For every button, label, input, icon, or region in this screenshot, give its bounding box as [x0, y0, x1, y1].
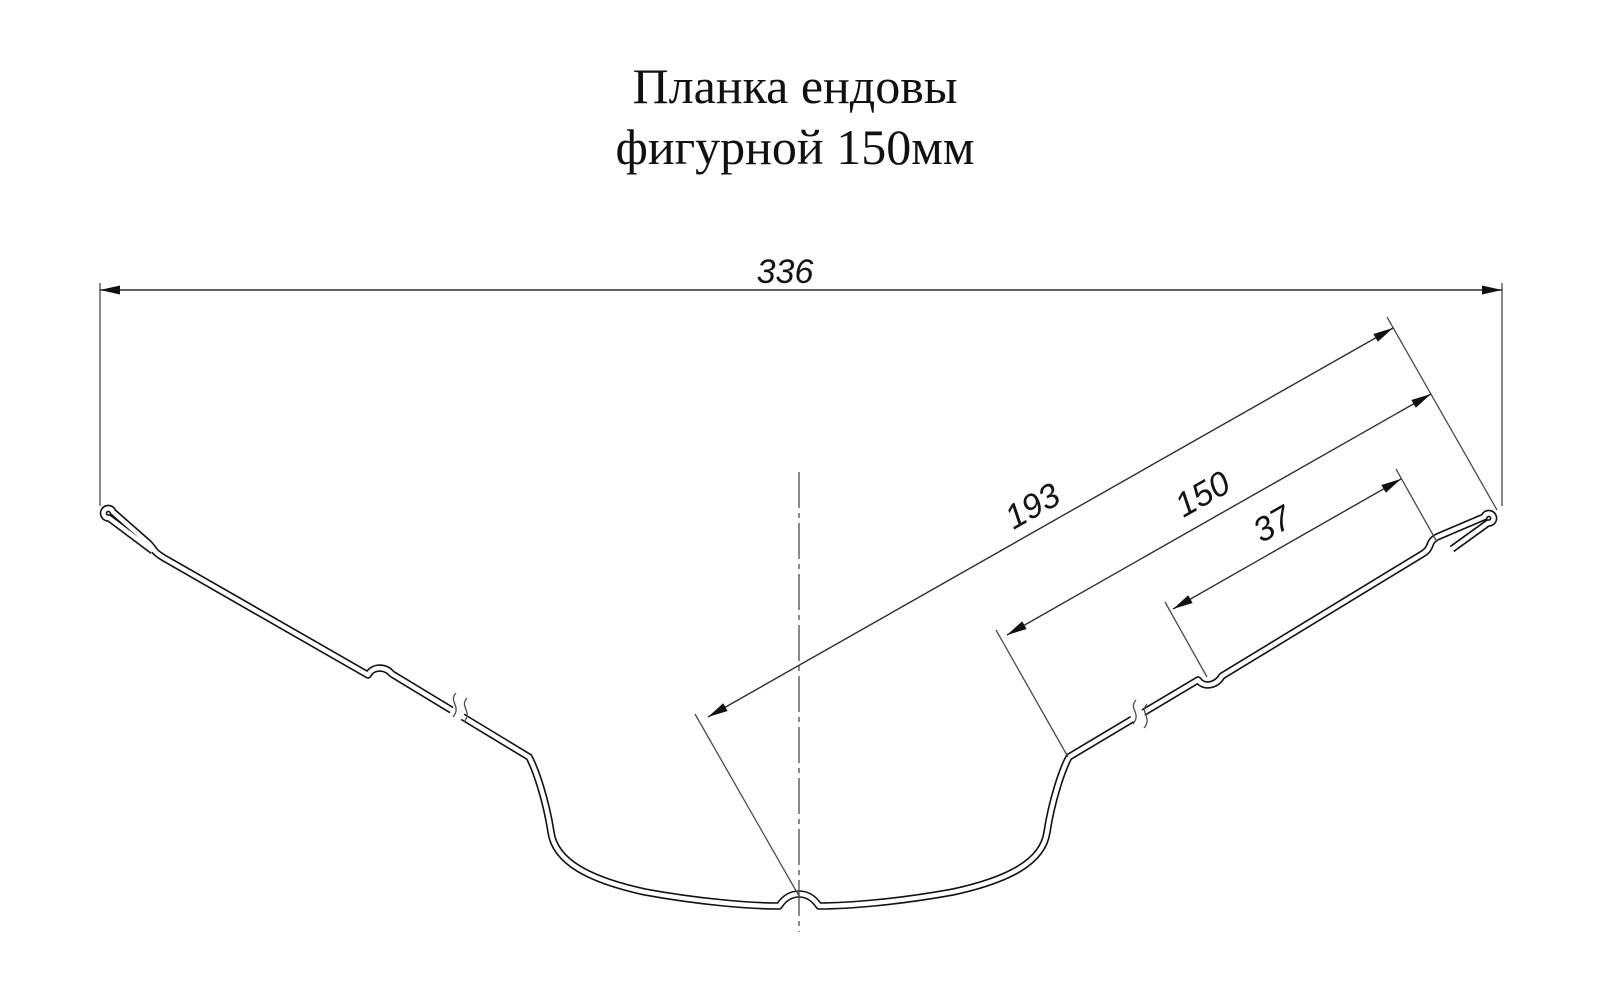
dim-line-150 [1007, 394, 1431, 635]
dim-37-arrow-lower [1171, 595, 1193, 613]
ext-line-rib [1165, 602, 1207, 677]
dim-336-arrow-left [100, 286, 120, 295]
ext-line-flange-bend [996, 630, 1068, 757]
dim-150-value: 150 [1169, 464, 1237, 525]
ext-line-valley-center-diagonal [695, 714, 799, 896]
dim-150-arrow-lower [1005, 621, 1027, 639]
dim-193-arrow-lower [706, 703, 728, 721]
dim-336-value: 336 [757, 253, 814, 291]
dim-336-arrow-right [1482, 286, 1502, 295]
drawing-canvas: 336 193 150 37 [0, 0, 1600, 1000]
dim-193-value: 193 [999, 476, 1067, 537]
dim-37-arrow-upper [1381, 475, 1403, 493]
ext-line-edge-step [1396, 469, 1437, 542]
drawing-sheet: Планка ендовы фигурной 150мм [0, 0, 1600, 1000]
dim-37-value: 37 [1247, 498, 1300, 550]
